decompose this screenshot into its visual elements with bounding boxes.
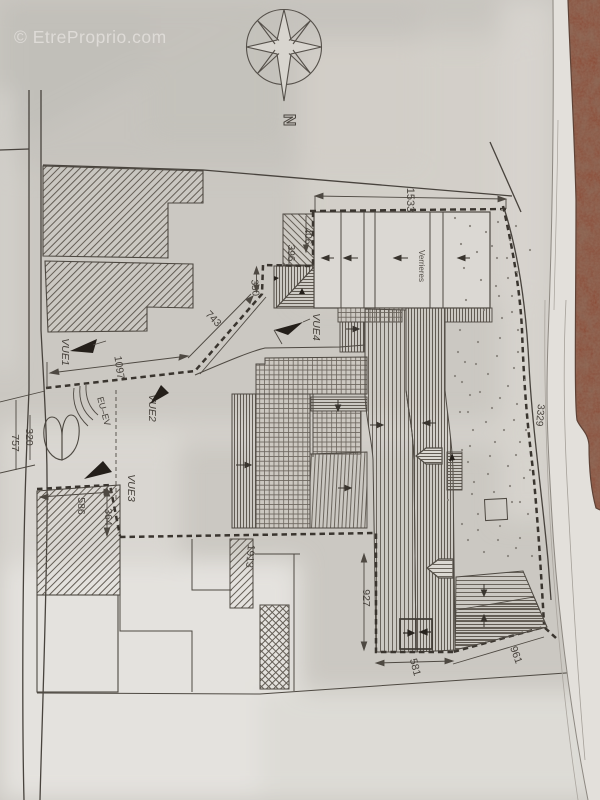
svg-text:350: 350 (248, 279, 260, 297)
svg-text:© EtreProprio.com: © EtreProprio.com (14, 27, 167, 47)
svg-text:VUE4: VUE4 (310, 313, 322, 341)
svg-text:406: 406 (302, 228, 313, 245)
svg-text:N: N (280, 114, 299, 126)
svg-text:364: 364 (102, 508, 114, 526)
svg-text:1913: 1913 (243, 544, 257, 568)
svg-text:VUE3: VUE3 (125, 474, 137, 502)
svg-text:VUE1: VUE1 (59, 338, 71, 365)
svg-text:Verrieres: Verrieres (417, 250, 426, 282)
svg-text:396: 396 (285, 245, 296, 262)
svg-text:757: 757 (9, 434, 21, 452)
svg-text:1533: 1533 (404, 188, 416, 212)
svg-text:927: 927 (360, 589, 372, 607)
svg-text:3329: 3329 (533, 404, 546, 428)
svg-text:586: 586 (75, 497, 87, 515)
svg-text:320: 320 (23, 428, 35, 446)
